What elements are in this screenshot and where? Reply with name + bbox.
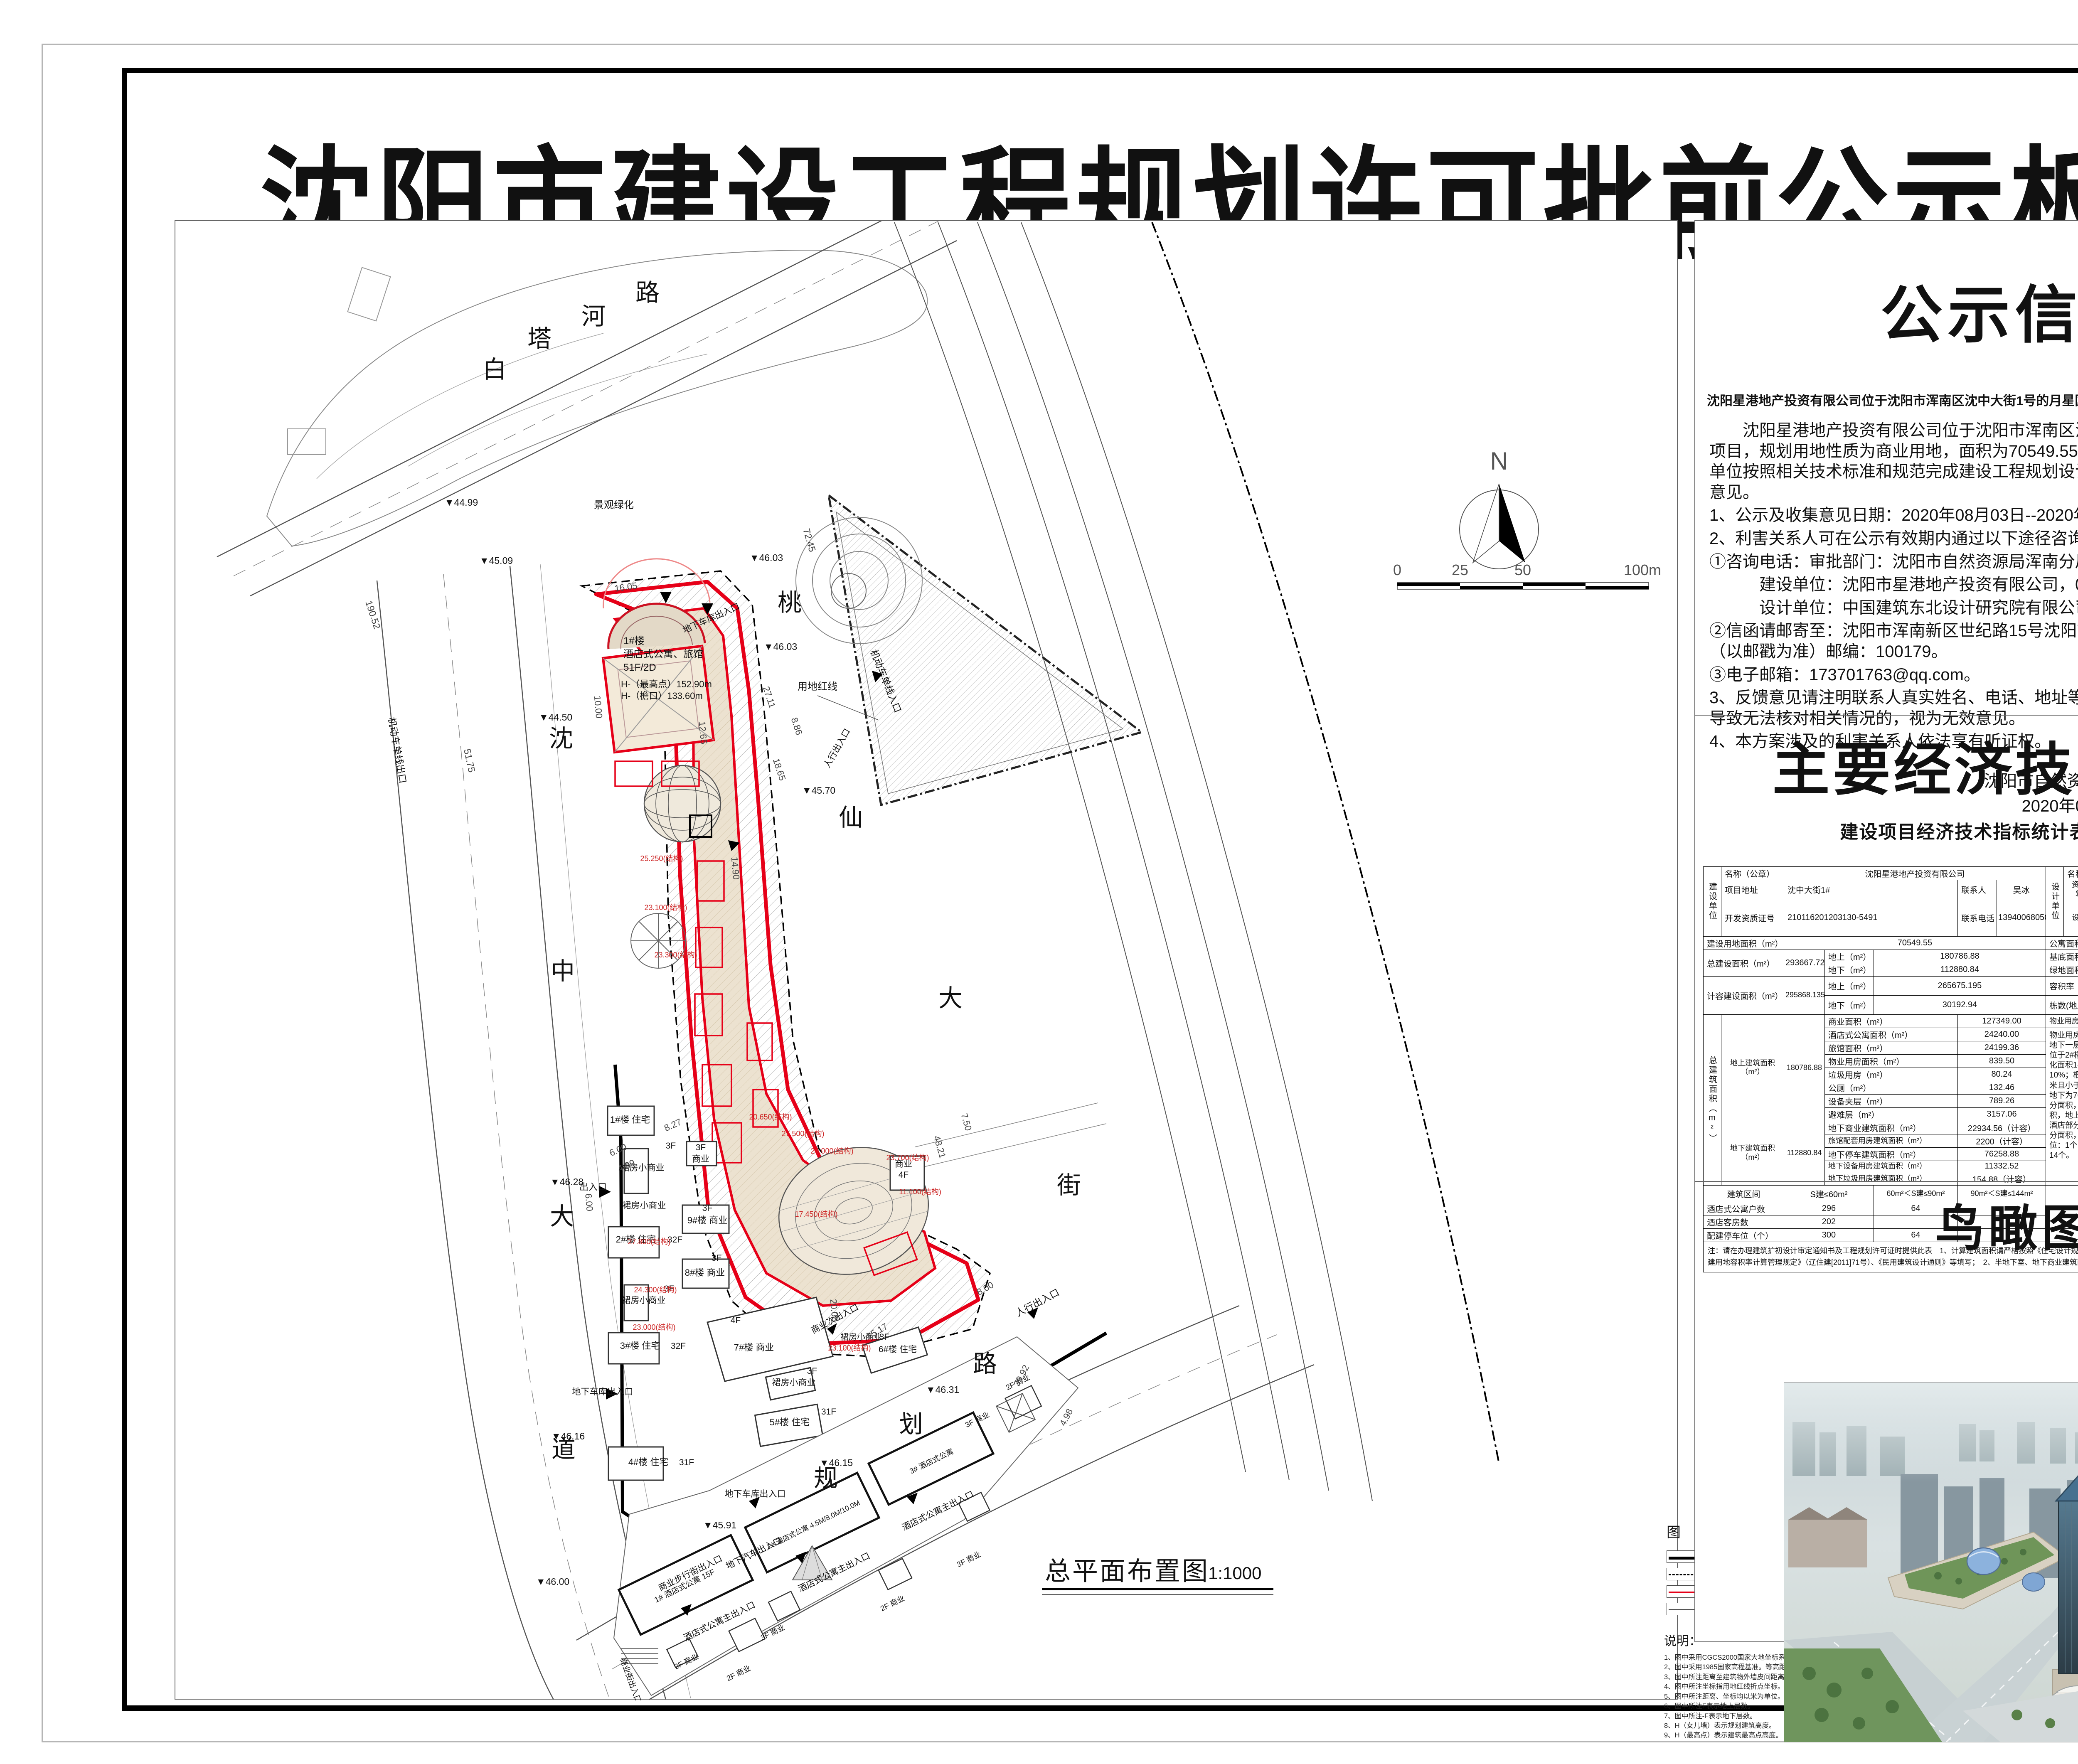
map-label: 100m	[1624, 561, 1661, 578]
circle-plaza	[631, 913, 686, 968]
map-labels: 白塔河路沈中大道桃仙大街规划路N02550100m总平面布置图1:1000景观绿…	[363, 279, 1661, 1700]
map-label: ▼44.99	[445, 497, 478, 508]
econ-table-cell: 计容建设面积（m²）	[1703, 976, 1784, 1014]
map-label: 31F	[821, 1407, 836, 1417]
map-label: 4#楼 住宅	[628, 1457, 669, 1467]
map-label: 25	[1452, 561, 1468, 578]
notice-paragraph: 沈阳星港地产投资有限公司位于沈阳市浑南区沈中大街1号的月星国际城A1区项目，规划…	[1709, 421, 2078, 503]
econ-table-cell: 沈阳星港地产投资有限公司	[1784, 867, 2046, 880]
map-label: 12.65	[697, 721, 709, 745]
map-label: N	[1490, 447, 1508, 475]
map-label: 人行出入口	[1014, 1287, 1061, 1319]
econ-table-cell: 80.24	[1957, 1068, 2046, 1081]
econ-table-cell: 地下停车建筑面积（m²）	[1824, 1147, 1957, 1161]
map-label: ▼45.70	[802, 785, 835, 796]
econ-table-cell: 789.26	[1957, 1094, 2046, 1107]
dome-feature	[644, 765, 721, 842]
econ-table-cell: 112880.84	[1784, 1121, 1824, 1185]
notice-board-sheet: { "doc": { "board_title": "沈阳市建设工程规划许可批前…	[0, 0, 2078, 1764]
econ-table-cell: 名称（公章）	[1721, 867, 1784, 880]
map-label: 酒店式公寓、旅馆	[623, 649, 703, 660]
notice-subtitle: 沈阳星港地产投资有限公司位于沈阳市浑南区沈中大街1号的月星国际城A1区项目规划许…	[1695, 390, 2078, 409]
econ-table-cell: 设备夹层（m²）	[1824, 1094, 1957, 1107]
map-label: 10.00	[592, 695, 605, 719]
econ-table-cell: 基底面积（m²）	[2046, 950, 2078, 963]
econ-table-cell: 180786.88	[1874, 950, 2046, 963]
econ-table-cell: 127349.00	[1957, 1014, 2046, 1028]
map-label: 裙房小商业	[772, 1378, 816, 1388]
map-label: 50	[1514, 561, 1531, 578]
econ-table-cell: 建设用地面积（m²）	[1703, 936, 1784, 950]
map-label: 51.75	[462, 748, 477, 773]
econ-table-cell: 公寓面积（m²）	[2046, 936, 2078, 950]
econ-table-cell: 物业用房位于1#楼二层局部及2#楼三层局部；垃圾用房在1#楼地下一层、2#楼西侧…	[2046, 1028, 2078, 1185]
aerial-render-svg	[1784, 1383, 2078, 1742]
econ-table-cell: 旅馆配套用房建筑面积（m²）	[1824, 1134, 1957, 1147]
map-label: ▼45.09	[480, 555, 513, 566]
notice-item: ①咨询电话：审批部门：沈阳市自然资源局浑南分局审批科，024-24222956；	[1709, 552, 2078, 573]
econ-table-cell: 3157.06	[1957, 1107, 2046, 1121]
econ-table-cell: 总建设面积（m²）	[1703, 950, 1784, 976]
map-label: 裙房小商业	[622, 1296, 666, 1305]
map-label: H-（最高点）152.90m	[621, 679, 712, 689]
map-label: 地下车库出入口	[725, 1489, 786, 1499]
map-label: H-（檐口）133.60m	[621, 691, 703, 701]
notice-item: 建设单位：沈阳市星港地产投资有限公司，024-31696200；	[1709, 575, 2078, 595]
site-plan-drawing: 白塔河路沈中大道桃仙大街规划路N02550100m总平面布置图1:1000景观绿…	[175, 221, 1679, 1700]
map-label: 白	[483, 356, 507, 383]
map-label: 27.500(结构)	[781, 1129, 824, 1138]
econ-table-cell: 地下商业建筑面积（m²）	[1824, 1121, 1957, 1134]
econ-table-cell: 24240.00	[1957, 1028, 2046, 1041]
econ-table-cell: 物业用房、垃圾用房、公厕的位置及绿化信息	[2046, 1014, 2078, 1028]
map-label: 用地红线	[798, 681, 837, 692]
map-label: 9#楼 商业	[687, 1215, 728, 1225]
map-label: 3F	[702, 1203, 713, 1213]
map-label: 仙	[839, 804, 863, 831]
map-label: 3F 商业	[955, 1550, 982, 1569]
notice-item: 设计单位：中国建筑东北设计研究院有限公司，024-81978220；	[1709, 598, 2078, 619]
econ-table-cell: 公厕（m²）	[1824, 1081, 1957, 1094]
map-label: 7.50	[959, 1112, 974, 1132]
map-label: 8#楼 商业	[685, 1267, 725, 1278]
econ-table-cell: 132.46	[1957, 1081, 2046, 1094]
map-label: 24.000(结构)	[810, 1147, 853, 1155]
map-label: 8.27	[662, 1117, 683, 1133]
map-label: ▼46.16	[552, 1431, 585, 1442]
econ-section: 主要经济技术指标 建设项目经济技术指标统计表（A1地块） 填表日期：2020年0…	[1695, 715, 2078, 1181]
econ-table-cell: 839.50	[1957, 1054, 2046, 1068]
econ-table-cell: 地下设备用房建筑面积（m²）	[1824, 1161, 1957, 1172]
econ-table-cell: 旅馆面积（m²）	[1824, 1041, 1957, 1054]
econ-table-cell: 项目地址	[1721, 880, 1784, 899]
econ-table-cell: 联系电话	[1957, 899, 1997, 936]
map-label: 6#楼 住宅	[879, 1345, 917, 1354]
map-label: 11.100(结构)	[899, 1188, 941, 1196]
econ-table-cell: 22934.56（计容）	[1957, 1121, 2046, 1134]
map-label: 规	[814, 1465, 838, 1492]
north-arrow	[1460, 484, 1539, 569]
econ-table-cell: 联系人	[1957, 880, 1997, 899]
map-label: 路	[635, 279, 660, 306]
map-label: 大	[550, 1203, 574, 1230]
map-label: 路	[973, 1351, 997, 1378]
map-label: 6.00	[583, 1193, 595, 1212]
map-label: 3F	[712, 1253, 722, 1263]
map-label: ▼44.50	[539, 712, 572, 723]
econ-table-cell: 13940068050	[1997, 899, 2046, 936]
econ-table-cell: 30192.94	[1874, 995, 2046, 1014]
map-label: 48.21	[932, 1134, 948, 1159]
map-label: 32F	[671, 1341, 686, 1351]
map-label: ▼46.15	[820, 1457, 853, 1468]
map-label: 23.700(结构)	[886, 1154, 929, 1162]
econ-table-cell: 265675.195	[1874, 976, 2046, 995]
econ-table-cell: 112880.84	[1874, 963, 2046, 976]
econ-table-cell: 容积率	[2046, 976, 2078, 995]
econ-table-cell: 24199.36	[1957, 1041, 2046, 1054]
econ-table-cell: 2200（计容）	[1957, 1134, 2046, 1147]
map-label: ▼46.00	[536, 1576, 569, 1587]
econ-table-cell: 地下建筑面积（m²）	[1721, 1121, 1784, 1185]
map-label: 14.90	[729, 856, 742, 880]
map-label: ▼46.03	[750, 552, 783, 563]
map-label: 0	[1393, 561, 1401, 578]
map-label: 1#楼	[623, 635, 645, 647]
econ-table-cell: 210116201203130-5491	[1784, 899, 1957, 936]
map-label: 划	[899, 1411, 923, 1438]
map-label: 31F	[679, 1458, 694, 1467]
econ-table-cell: 栋数(地上)	[2046, 995, 2078, 1014]
map-label: 景观绿化	[594, 499, 634, 511]
econ-table-cell: 地上建筑面积（m²）	[1721, 1014, 1784, 1121]
econ-table-cell: 总建筑面积（m²）	[1703, 1014, 1721, 1185]
map-label: 沈	[549, 725, 573, 752]
econ-table-cell: 开发资质证号	[1721, 899, 1784, 936]
econ-table-cell: 180786.88	[1784, 1014, 1824, 1121]
notice-item: 2、利害关系人可在公示有效期内通过以下途径咨询或提出意见：	[1709, 529, 2078, 549]
map-label: 24.300(结构)	[634, 1286, 677, 1294]
map-label: 2F 商业	[879, 1594, 906, 1613]
map-label: 3F	[666, 1141, 676, 1151]
econ-table-cell: 295868.135	[1784, 976, 1824, 1014]
map-label: 街	[1057, 1172, 1081, 1199]
notice-title: 公示信息	[1695, 265, 2078, 355]
econ-table-cell: 资质等级（建筑、规划）	[2064, 880, 2078, 899]
map-label: 20.650(结构)	[749, 1113, 792, 1121]
map-label: 8.86	[789, 716, 805, 736]
map-label: 25.250(结构)	[640, 854, 683, 863]
econ-table-cell: 建设单位	[1703, 867, 1721, 937]
econ-table-cell: 商业面积（m²）	[1824, 1014, 1957, 1028]
econ-table-cell: 绿地面积（m²）	[2046, 963, 2078, 976]
map-label: 7#楼 商业	[734, 1342, 774, 1353]
econ-table-cell: 11332.52	[1957, 1161, 2046, 1172]
map-label: ▼46.28	[550, 1176, 584, 1187]
econ-table-cell: 地上（m²）	[1824, 950, 1874, 963]
econ-table-cell: 293667.72	[1784, 950, 1824, 976]
map-label: ▼46.31	[926, 1384, 959, 1395]
econ-table-cell: 地下（m²）	[1824, 963, 1874, 976]
map-label: 地下车库出入口	[572, 1387, 633, 1397]
econ-table-cell: 设计资质证号	[2064, 899, 2078, 936]
notice-section: 公示信息 沈阳星港地产投资有限公司位于沈阳市浑南区沈中大街1号的月星国际城A1区…	[1695, 221, 2078, 715]
econ-table-cell: 设计单位	[2046, 867, 2064, 937]
map-label: 1:1000	[1208, 1563, 1261, 1583]
notice-body: 沈阳星港地产投资有限公司位于沈阳市浑南区沈中大街1号的月星国际城A1区项目，规划…	[1695, 409, 2078, 752]
econ-table-cell: 吴冰	[1997, 880, 2046, 899]
econ-table-cell: 76258.88	[1957, 1147, 2046, 1161]
map-label: 中	[551, 958, 575, 985]
map-label: 3#楼 住宅	[620, 1341, 660, 1351]
map-label: ▼45.91	[703, 1520, 736, 1530]
econ-table-cell: 名称（公章）	[2064, 867, 2078, 880]
notice-item: ③电子邮箱：173701763@qq.com。	[1709, 665, 2078, 686]
map-label: 23.300(结构)	[654, 951, 697, 959]
map-label: 51F/2D	[623, 662, 656, 673]
map-label: 商业	[692, 1154, 709, 1164]
aerial-section: 鸟瞰图	[1695, 1181, 2078, 1643]
map-label: 桃	[778, 589, 802, 616]
notice-item: 1、公示及收集意见日期：2020年08月03日--2020年08月11日（7个工…	[1709, 505, 2078, 526]
map-label: 18.65	[771, 757, 788, 782]
map-label: 人行出入口	[822, 727, 852, 770]
map-label: 机动车单线出口	[386, 716, 409, 784]
map-label: 17.450(结构)	[795, 1210, 837, 1218]
map-label: 2F 商业	[725, 1664, 752, 1683]
notice-item: ②信函请邮寄至：沈阳市浑南新区世纪路15号沈阳市自然资源局浑南分局审批科（以邮戳…	[1709, 621, 2078, 662]
site-plan-panel: 白塔河路沈中大道桃仙大街规划路N02550100m总平面布置图1:1000景观绿…	[175, 220, 1678, 1700]
econ-table-cell: 70549.55	[1784, 936, 2046, 950]
map-label: 4F	[899, 1170, 909, 1180]
map-label: 3F	[696, 1143, 706, 1152]
map-label: 20.08	[828, 1299, 841, 1322]
map-label: 27.800(结构)	[628, 1238, 670, 1246]
map-label: 4F	[731, 1316, 741, 1325]
map-label: 72.45	[801, 527, 818, 553]
econ-table-cell: 沈中大街1#	[1784, 880, 1957, 899]
aerial-render	[1784, 1382, 2078, 1742]
map-label: 3F	[807, 1366, 817, 1376]
econ-section-title: 主要经济技术指标	[1695, 723, 2078, 806]
econ-table-cell: 地上（m²）	[1824, 976, 1874, 995]
map-label: 河	[581, 303, 606, 330]
info-panel: 公示信息 沈阳星港地产投资有限公司位于沈阳市浑南区沈中大街1号的月星国际城A1区…	[1694, 220, 2078, 1642]
econ-table-title: 建设项目经济技术指标统计表（A1地块）	[1695, 817, 2078, 844]
econ-table-cell: 酒店式公寓面积（m²）	[1824, 1028, 1957, 1041]
map-label: 裙房小商业	[623, 1201, 666, 1210]
map-label: ▼46.03	[764, 641, 797, 652]
econ-table-cell: 垃圾用房（m²）	[1824, 1068, 1957, 1081]
map-label: 总平面布置图	[1045, 1557, 1209, 1586]
aerial-title: 鸟瞰图	[1695, 1188, 2078, 1260]
scale-bar	[1397, 583, 1649, 589]
map-label: 塔	[527, 325, 552, 352]
map-label: 5#楼 住宅	[770, 1417, 810, 1427]
map-label: 23.100(结构)	[828, 1344, 871, 1352]
map-label: 23.000(结构)	[633, 1323, 675, 1331]
map-label: 23.100(结构)	[644, 903, 687, 912]
map-label: 1#楼 住宅	[610, 1114, 650, 1125]
map-label: 大	[938, 985, 963, 1012]
econ-table-cell: 地下（m²）	[1824, 995, 1874, 1014]
econ-fill-date: 填表日期：2020年07月22日	[1695, 849, 2078, 864]
econ-table-cell: 避难层（m²）	[1824, 1107, 1957, 1121]
econ-table-cell: 物业用房面积（m²）	[1824, 1054, 1957, 1068]
